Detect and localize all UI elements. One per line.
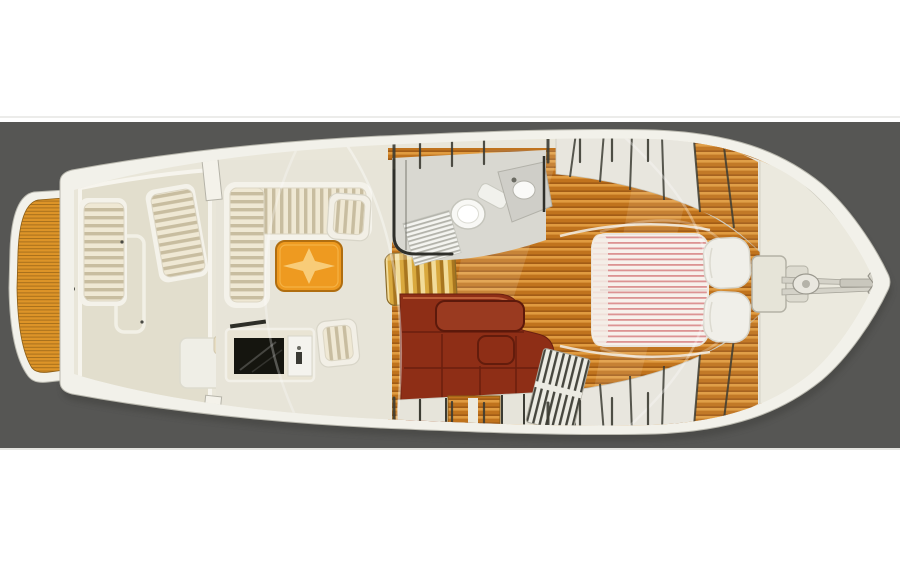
- salon-armchair: [326, 193, 371, 242]
- top-rule: [0, 116, 900, 118]
- top-white-band: [0, 0, 900, 122]
- deck-fitting-1: [120, 240, 123, 243]
- bottom-white-band: [0, 450, 900, 573]
- swim-platform-teak: [17, 198, 64, 373]
- cockpit-bench-port: [79, 198, 127, 306]
- swim-platform: [9, 190, 66, 382]
- salon: [202, 157, 392, 434]
- forward-hatch: [752, 256, 786, 312]
- salon-side-chair: [316, 318, 361, 368]
- tv-cabinet: [226, 320, 314, 381]
- deck-fitting-2: [140, 320, 143, 323]
- yacht-floorplan-illustration: [0, 0, 900, 573]
- dinette-table: [436, 301, 524, 331]
- bottom-rule: [0, 448, 900, 450]
- hi-lo-table: [276, 241, 342, 291]
